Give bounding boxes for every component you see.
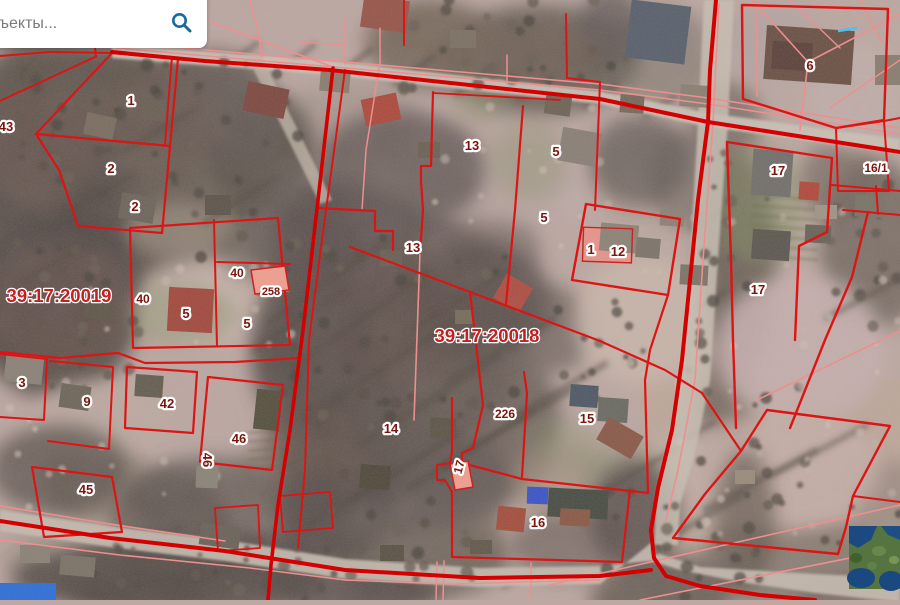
svg-text:1: 1: [587, 242, 594, 257]
svg-text:5: 5: [243, 316, 250, 331]
svg-text:258: 258: [262, 286, 280, 298]
svg-text:5: 5: [182, 306, 189, 321]
svg-text:40: 40: [136, 292, 150, 306]
svg-text:9: 9: [83, 394, 90, 409]
svg-text:17: 17: [771, 163, 785, 178]
svg-text:226: 226: [495, 407, 515, 421]
svg-text:2: 2: [131, 199, 138, 214]
svg-text:3: 3: [18, 375, 25, 390]
svg-text:42: 42: [160, 396, 174, 411]
svg-text:40: 40: [230, 266, 244, 280]
svg-text:46: 46: [200, 453, 215, 467]
svg-text:16: 16: [531, 515, 545, 530]
svg-text:39:17:20018: 39:17:20018: [435, 325, 540, 346]
svg-text:43: 43: [0, 119, 13, 134]
svg-text:46: 46: [232, 431, 246, 446]
svg-text:13: 13: [406, 240, 420, 255]
svg-text:14: 14: [384, 421, 399, 436]
svg-text:2: 2: [107, 161, 114, 176]
svg-text:45: 45: [79, 482, 93, 497]
svg-text:39:17:20019: 39:17:20019: [7, 285, 112, 306]
svg-text:1: 1: [127, 93, 134, 108]
svg-text:16/1: 16/1: [864, 161, 888, 175]
svg-text:13: 13: [465, 138, 479, 153]
svg-text:15: 15: [580, 411, 594, 426]
svg-text:12: 12: [611, 244, 625, 259]
svg-text:6: 6: [806, 58, 813, 73]
svg-text:17: 17: [751, 282, 765, 297]
svg-text:5: 5: [552, 144, 559, 159]
svg-text:5: 5: [540, 210, 547, 225]
